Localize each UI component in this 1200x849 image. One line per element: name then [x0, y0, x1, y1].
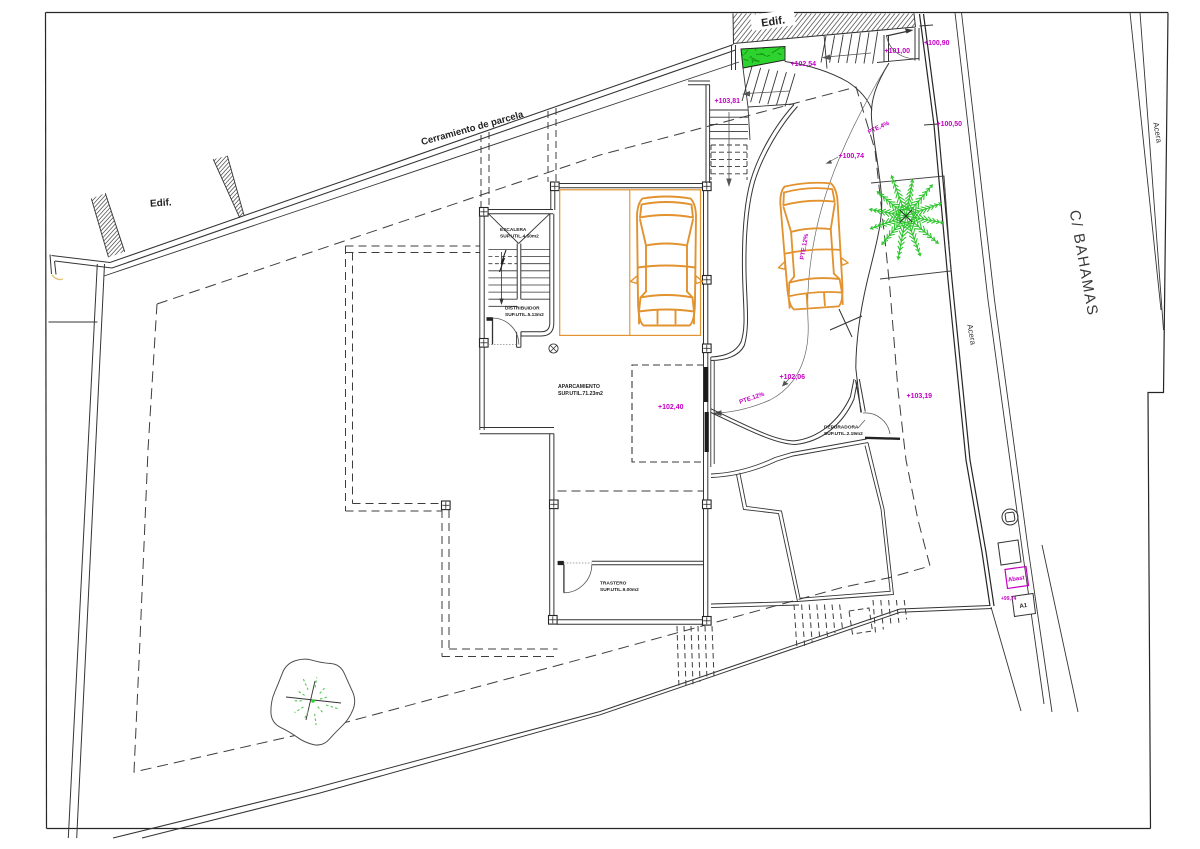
svg-text:+102,06: +102,06	[780, 374, 806, 381]
svg-text:A1: A1	[1019, 603, 1028, 610]
svg-text:SUP.UTIL.4.50m2: SUP.UTIL.4.50m2	[500, 234, 539, 240]
svg-text:SUP.UTIL.71.23m2: SUP.UTIL.71.23m2	[558, 391, 603, 397]
svg-text:SUP.UTIL.5.13m2: SUP.UTIL.5.13m2	[505, 312, 544, 318]
svg-text:+100,74: +100,74	[839, 153, 865, 160]
svg-text:+103,81: +103,81	[715, 98, 741, 105]
svg-text:SUP.UTIL.9.00m2: SUP.UTIL.9.00m2	[600, 587, 639, 593]
svg-text:DEPURADORA: DEPURADORA	[824, 425, 859, 431]
svg-text:+99,74: +99,74	[1001, 596, 1017, 602]
svg-text:Edif.: Edif.	[150, 197, 173, 209]
svg-text:+102,54: +102,54	[791, 61, 817, 68]
svg-text:APARCAMIENTO: APARCAMIENTO	[558, 384, 600, 390]
svg-text:DISTRIBUIDOR: DISTRIBUIDOR	[505, 306, 540, 312]
svg-text:+102,40: +102,40	[658, 404, 684, 411]
svg-text:ESCALERA: ESCALERA	[500, 227, 527, 233]
svg-text:+100,90: +100,90	[924, 40, 950, 47]
svg-text:+103,19: +103,19	[907, 393, 933, 400]
svg-text:SUP.UTIL.2.19m2: SUP.UTIL.2.19m2	[824, 431, 863, 437]
svg-text:+100,50: +100,50	[937, 121, 963, 128]
svg-text:+101,00: +101,00	[885, 48, 911, 55]
svg-text:TRASTERO: TRASTERO	[600, 581, 627, 587]
